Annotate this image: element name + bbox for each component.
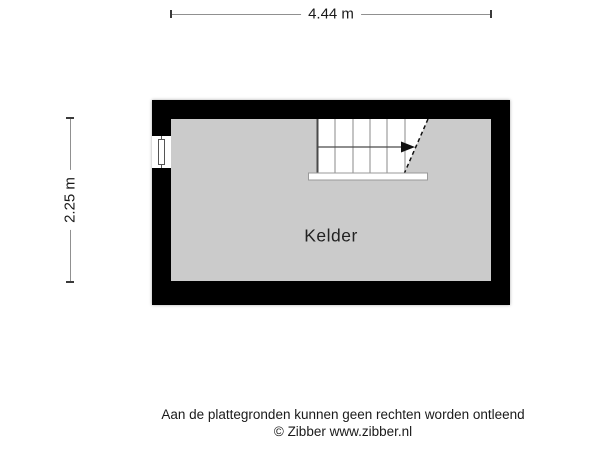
copyright-text: © Zibber www.zibber.nl <box>161 423 524 440</box>
width-dimension-tick-left <box>170 10 172 18</box>
stairs-icon <box>307 118 432 184</box>
window-frame <box>158 139 165 165</box>
height-dimension-tick-top <box>66 117 74 119</box>
room-label: Kelder <box>304 226 358 247</box>
disclaimer-text: Aan de plattegronden kunnen geen rechten… <box>161 406 524 423</box>
footer: Aan de plattegronden kunnen geen rechten… <box>161 406 524 440</box>
height-dimension-tick-bottom <box>66 281 74 283</box>
floorplan-page: 4.44 m 2.25 m Kelder <box>0 0 600 450</box>
width-dimension-tick-right <box>490 10 492 18</box>
window-icon <box>152 136 171 168</box>
height-dimension-label: 2.25 m <box>62 170 79 230</box>
width-dimension-label: 4.44 m <box>301 6 361 23</box>
